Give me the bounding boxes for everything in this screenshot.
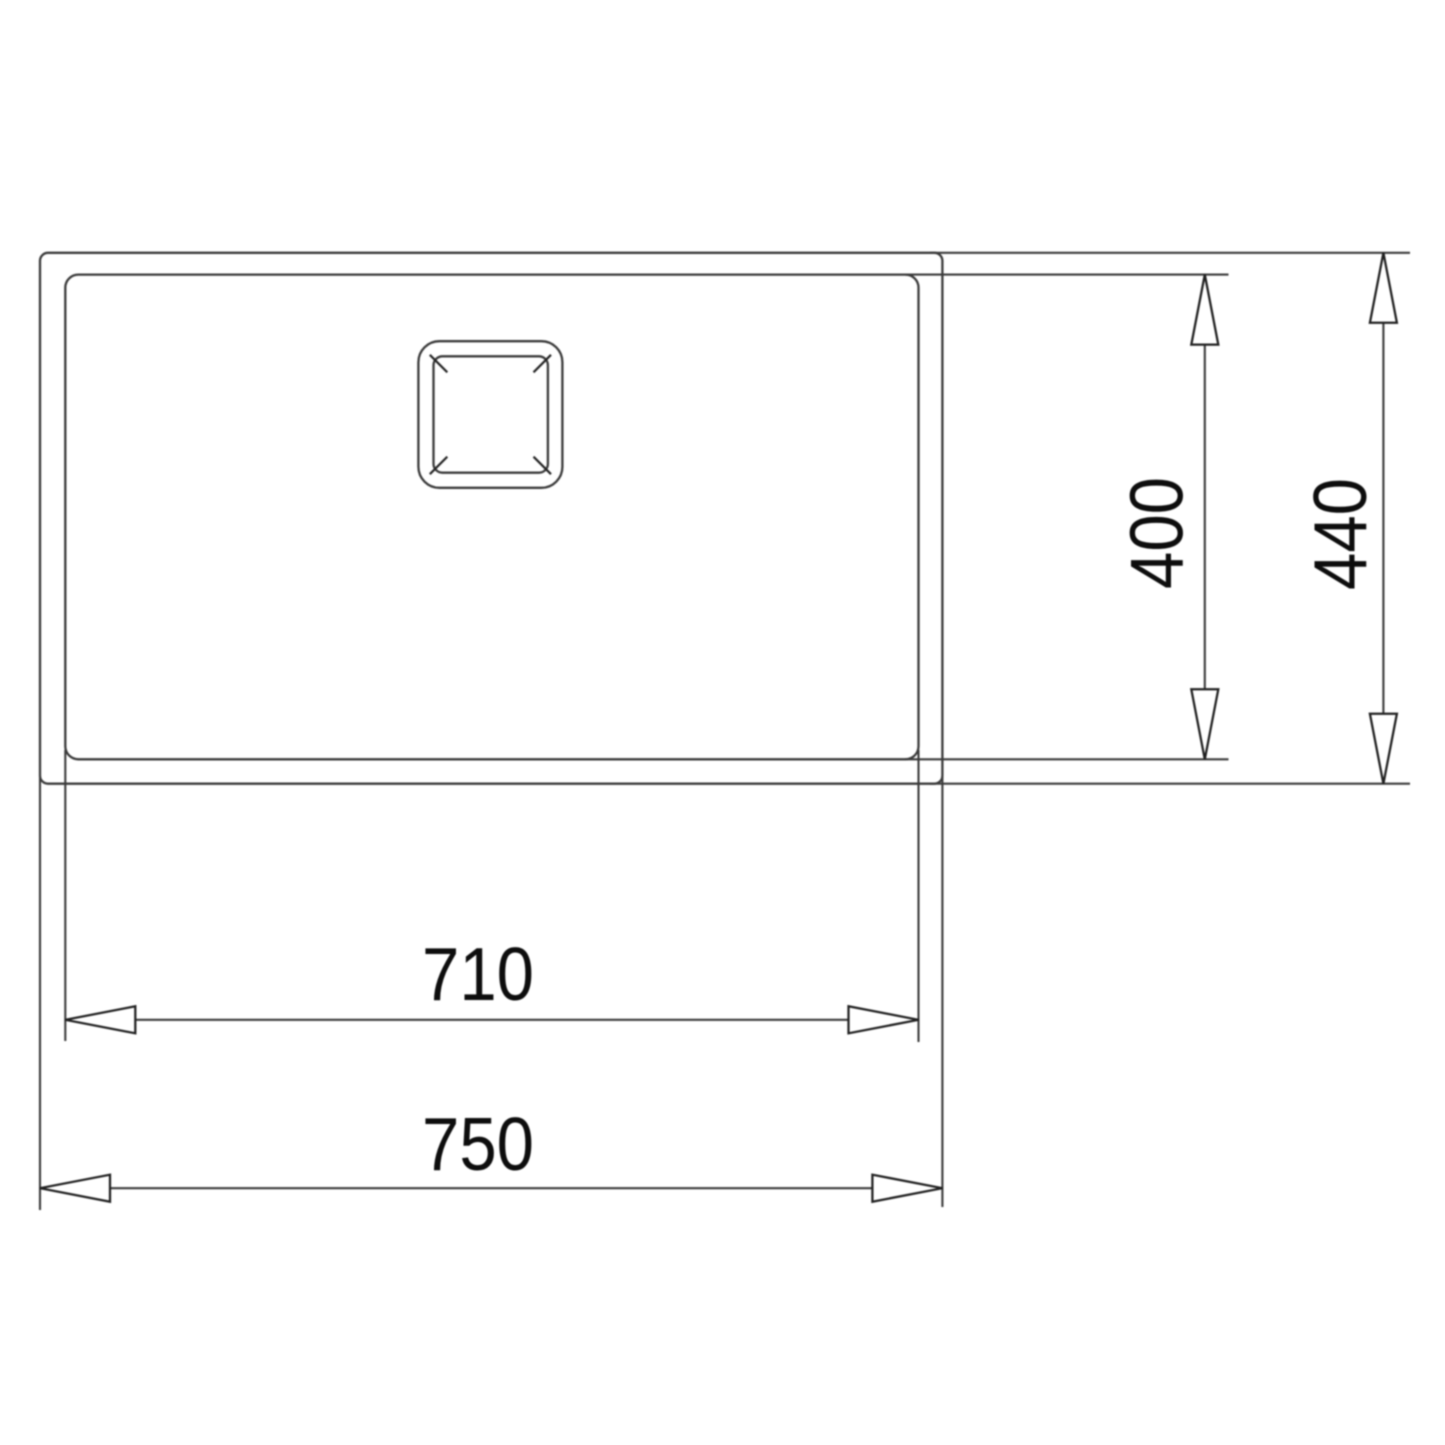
svg-text:400: 400 [1115,477,1199,589]
svg-text:750: 750 [422,1102,534,1186]
svg-text:440: 440 [1298,478,1382,590]
svg-text:710: 710 [422,932,534,1016]
